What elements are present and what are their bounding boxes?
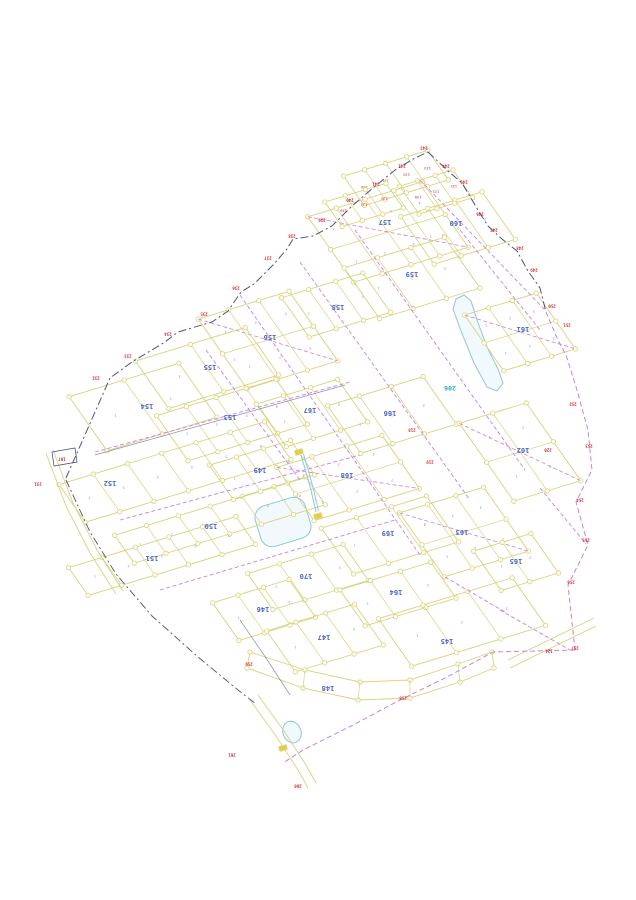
parcel-node — [368, 578, 372, 582]
parcel-node — [393, 614, 397, 618]
parcel-node — [462, 313, 466, 317]
parcel-node — [336, 377, 340, 381]
lot-number: 1 — [94, 574, 96, 578]
parcel-node — [334, 206, 338, 210]
cadastral-map-page: 1122331122334412312312311223312121234123… — [0, 0, 636, 900]
parcel-node — [397, 184, 401, 188]
parcel-node — [338, 588, 342, 592]
parcel-node — [363, 624, 367, 628]
block-label: 155 — [204, 363, 217, 371]
lot-number: 1 — [416, 634, 418, 638]
water-body — [280, 719, 304, 746]
parcel-node — [409, 245, 413, 249]
lot-number: 3 — [338, 403, 340, 407]
red-marker: 248 — [516, 246, 524, 251]
block-label: 170 — [300, 572, 313, 580]
lot-number: 4 — [191, 465, 193, 469]
parcel-node — [125, 461, 129, 465]
red-marker: 107 — [58, 457, 66, 462]
parcel-node — [293, 492, 297, 496]
lot-number: 3 — [506, 606, 508, 610]
parcel-node — [352, 602, 356, 606]
block-label: 152 — [104, 479, 117, 487]
lot-number: 5 — [225, 454, 227, 458]
red-lot-number: 130 — [339, 209, 347, 214]
block-label: 154 — [141, 402, 154, 410]
block-label: 160 — [450, 219, 463, 227]
lot-number: 1 — [354, 544, 356, 548]
parcel-node — [534, 291, 538, 295]
parcel-node — [322, 661, 326, 665]
lot-number: 2 — [522, 425, 524, 429]
parcel-node — [484, 460, 488, 464]
block-label: 148 — [322, 684, 335, 692]
block-label: 161 — [517, 325, 530, 333]
lot-number: 1 — [377, 286, 379, 290]
parcel-node — [380, 433, 384, 437]
parcel-node — [573, 347, 577, 351]
parcel-node — [246, 440, 250, 444]
parcel-node — [554, 319, 558, 323]
lot-number: 1 — [485, 323, 487, 327]
parcel-node — [309, 552, 313, 556]
street-dashed — [206, 350, 300, 480]
parcel-node — [357, 394, 361, 398]
parcel-node — [186, 563, 190, 567]
parcel-node — [391, 441, 395, 445]
parcel-node — [340, 224, 344, 228]
red-marker: 219 — [426, 460, 434, 465]
parcel-node — [291, 512, 295, 516]
parcel-node — [86, 593, 90, 597]
red-marker: 246 — [476, 212, 484, 217]
parcel-node — [166, 406, 170, 410]
parcel-node — [112, 533, 116, 537]
parcel-node — [221, 390, 225, 394]
parcel-node — [433, 173, 437, 177]
parcel-node — [551, 440, 555, 444]
parcel-node — [446, 178, 450, 182]
cadastral-map-svg: 1122331122334412312312311223312121234123… — [0, 0, 636, 900]
parcel-node — [310, 455, 314, 459]
parcel-node — [360, 218, 364, 222]
block-label: 167 — [304, 406, 317, 414]
parcel-node — [421, 603, 425, 607]
parcel-node — [499, 588, 503, 592]
red-marker: 252 — [569, 402, 577, 407]
lot-number: 1 — [505, 351, 507, 355]
parcel-node — [362, 167, 366, 171]
lot-line — [196, 443, 222, 481]
parcel-node — [152, 499, 156, 503]
parcel-node — [417, 212, 421, 216]
parcel-node — [409, 263, 413, 267]
parcel-node — [186, 489, 190, 493]
lot-number: 2 — [461, 620, 463, 624]
parcel-node — [421, 550, 425, 554]
lot-number: 1 — [489, 436, 491, 440]
parcel-node — [186, 459, 190, 463]
red-marker: 124 — [545, 649, 553, 654]
red-marker: 260 — [294, 784, 302, 789]
parcel-node — [258, 489, 262, 493]
parcel-node — [231, 497, 235, 501]
parcel-node — [284, 445, 288, 449]
parcel-node — [234, 514, 238, 518]
parcel-node — [194, 440, 198, 444]
road — [46, 453, 116, 594]
parcel-node — [363, 187, 367, 191]
parcel-node — [470, 196, 474, 200]
parcel-node — [293, 670, 297, 674]
parcel-node — [311, 324, 315, 328]
parcel-node — [453, 494, 457, 498]
parcel-node — [261, 585, 265, 589]
red-marker: 238 — [288, 234, 296, 239]
parcel-node — [334, 279, 338, 283]
parcel-node — [274, 377, 278, 381]
parcel-node — [305, 422, 309, 426]
parcel-node — [342, 266, 346, 270]
parcel-node — [334, 327, 338, 331]
parcel-node — [253, 542, 257, 546]
lot-number: 1 — [114, 413, 116, 417]
block-label: 169 — [382, 529, 395, 537]
parcel-node — [153, 573, 157, 577]
lot-number: 2 — [384, 251, 386, 255]
lot-number: 1 — [359, 423, 361, 427]
lot-line — [303, 670, 305, 688]
lot-line — [311, 554, 336, 590]
block-label: 166 — [384, 409, 397, 417]
parcel-node — [443, 212, 447, 216]
lot-number: 3 — [339, 565, 341, 569]
parcel-node — [383, 161, 387, 165]
parcel-node — [220, 352, 224, 356]
parcel-node — [452, 201, 456, 205]
parcel-node — [504, 517, 508, 521]
lot-number: 1 — [430, 234, 432, 238]
lot-number: 6 — [299, 494, 301, 498]
parcel-node — [480, 190, 484, 194]
red-marker: 237 — [264, 256, 272, 261]
lot-line — [284, 396, 314, 439]
lot-number: 1 — [178, 374, 180, 378]
lot-number: 3 — [285, 311, 287, 315]
boundary-magenta — [546, 312, 592, 650]
parcel-node — [442, 235, 446, 239]
parcel-node — [262, 420, 266, 424]
parcel-node — [525, 361, 529, 365]
red-marker: 235 — [200, 312, 208, 317]
parcel-node — [177, 361, 181, 365]
parcel-node — [501, 369, 505, 373]
block-label: 159 — [406, 270, 419, 278]
lot-number: 1 — [234, 476, 236, 480]
red-marker: 256 — [567, 580, 575, 585]
red-marker: 242 — [398, 164, 406, 169]
parcel-node — [184, 404, 188, 408]
parcel-node — [398, 569, 402, 573]
parcel-node — [513, 237, 517, 241]
lot-number: 3 — [391, 479, 393, 483]
parcel-node — [341, 174, 345, 178]
red-marker: 250 — [548, 304, 556, 309]
red-lot-number: 132 — [450, 184, 457, 189]
lot-number: 1 — [88, 496, 90, 500]
water-body — [453, 295, 503, 391]
block-label: 157 — [379, 218, 392, 226]
red-marker: 240 — [346, 198, 354, 203]
block-label: 146 — [257, 605, 270, 613]
parcel-node — [510, 576, 514, 580]
red-marker: 251 — [563, 323, 571, 328]
red-marker: 218 — [408, 428, 416, 433]
parcel-node — [444, 296, 448, 300]
parcel-node — [122, 378, 126, 382]
parcel-node — [426, 206, 430, 210]
lot-number: 2 — [338, 463, 340, 467]
parcel-node — [338, 428, 342, 432]
lot-number: 3 — [413, 242, 415, 246]
red-marker: 261 — [228, 753, 236, 758]
red-lot-number: 132 — [403, 172, 410, 177]
lot-number: 5 — [267, 503, 269, 507]
lot-number: 3 — [161, 554, 163, 558]
red-marker: 220 — [544, 448, 552, 453]
parcel-node — [388, 310, 392, 314]
parcel-node — [176, 514, 180, 518]
lot-number: 4 — [418, 200, 420, 204]
street-dashed — [120, 455, 360, 520]
parcel-node — [237, 638, 241, 642]
road — [250, 700, 308, 788]
parcel-node — [354, 515, 358, 519]
parcel-node — [308, 385, 312, 389]
parcel-node — [287, 577, 291, 581]
red-marker: 236 — [232, 286, 240, 291]
red-marker: 259 — [245, 662, 253, 667]
parcel-node — [381, 212, 385, 216]
lot-line — [468, 591, 501, 639]
parcel-node — [432, 262, 436, 266]
parcel-node — [210, 601, 214, 605]
parcel-node — [133, 545, 137, 549]
lot-number: 2 — [216, 423, 218, 427]
red-marker: 255 — [582, 538, 590, 543]
parcel-node — [545, 489, 549, 493]
parcel-node — [287, 289, 291, 293]
parcel-node — [401, 206, 405, 210]
lot-line — [296, 622, 325, 663]
parcel-node — [216, 449, 220, 453]
lot-number: 1 — [295, 645, 297, 649]
parcel-node — [389, 505, 393, 509]
red-lot-number: 131 — [432, 190, 440, 195]
lot-number: 1 — [424, 523, 426, 527]
parcel-node — [352, 652, 356, 656]
parcel-node — [328, 247, 332, 251]
block-label: 145 — [441, 637, 454, 645]
parcel-node — [424, 494, 428, 498]
parcel-node — [244, 386, 248, 390]
lot-number: 2 — [452, 514, 454, 518]
lot-number: 1 — [501, 564, 503, 568]
water-label: 206 — [444, 384, 456, 392]
parcel-node — [132, 561, 136, 565]
lot-line — [370, 581, 395, 617]
lot-line — [147, 526, 167, 554]
lot-number: 3 — [157, 475, 159, 479]
parcel-node — [381, 643, 385, 647]
parcel-node — [510, 298, 514, 302]
parcel-node — [425, 502, 429, 506]
parcel-node — [160, 451, 164, 455]
red-marker: 231 — [34, 482, 42, 487]
parcel-node — [526, 549, 530, 553]
red-marker: 239 — [318, 218, 326, 223]
parcel-node — [261, 446, 265, 450]
block-label: 147 — [318, 633, 331, 641]
parcel-node — [492, 666, 496, 670]
parcel-node — [498, 557, 502, 561]
lot-number: 3 — [246, 413, 248, 417]
parcel-node — [556, 571, 560, 575]
lot-line — [458, 664, 460, 682]
street-dashed — [500, 610, 570, 650]
parcel-node — [228, 430, 232, 434]
lot-line — [230, 432, 256, 470]
lot-number: 1 — [249, 365, 251, 369]
parcel-node — [389, 384, 393, 388]
lot-number: 3 — [423, 403, 425, 407]
parcel-node — [164, 551, 168, 555]
lot-line — [336, 281, 364, 320]
road — [53, 450, 123, 591]
parcel-node — [167, 535, 171, 539]
parcel-node — [529, 531, 533, 535]
block-label: 165 — [510, 557, 523, 565]
parcel-node — [486, 306, 490, 310]
parcel-node — [319, 526, 323, 530]
parcel-node — [482, 341, 486, 345]
parcel-node — [524, 401, 528, 405]
parcel-node — [245, 571, 249, 575]
block-label: 151 — [146, 554, 159, 562]
lot-number: 3 — [288, 600, 290, 604]
lot-number: 2 — [255, 321, 257, 325]
parcel-node — [305, 368, 309, 372]
parcel-node — [398, 460, 402, 464]
red-marker: 243 — [420, 146, 428, 151]
lot-number: 2 — [127, 564, 129, 568]
block-label: 163 — [456, 528, 469, 536]
lot-line — [359, 396, 392, 444]
lot-number: 1 — [355, 260, 357, 264]
red-marker: 253 — [585, 444, 593, 449]
lot-line — [391, 507, 423, 553]
parcel-node — [254, 402, 258, 406]
parcel-node — [323, 611, 327, 615]
parcel-node — [478, 286, 482, 290]
lot-line — [279, 564, 304, 600]
parcel-node — [491, 411, 495, 415]
lot-number: 3 — [373, 452, 375, 456]
parcel-node — [457, 421, 461, 425]
parcel-node — [220, 552, 224, 556]
lot-line — [102, 557, 122, 585]
lot-number: 3 — [480, 505, 482, 509]
parcel-node — [512, 499, 516, 503]
red-marker: 234 — [164, 332, 172, 337]
lot-number: 2 — [529, 556, 531, 560]
parcel-node — [66, 565, 70, 569]
parcel-node — [376, 616, 380, 620]
red-lot-number: 131 — [360, 203, 368, 208]
parcel-node — [456, 540, 460, 544]
parcel-node — [236, 593, 240, 597]
parcel-node — [234, 455, 238, 459]
parcel-node — [288, 438, 292, 442]
parcel-node — [415, 179, 419, 183]
red-marker: 232 — [92, 376, 100, 381]
yellow-marker — [294, 448, 303, 455]
parcel-node — [361, 318, 365, 322]
parcel-node — [307, 335, 311, 339]
parcel-node — [470, 566, 474, 570]
parcel-node — [208, 504, 212, 508]
parcel-node — [361, 271, 365, 275]
parcel-node — [144, 523, 148, 527]
block-label: 150 — [205, 522, 218, 530]
lot-number: 2 — [169, 397, 171, 401]
parcel-node — [117, 510, 121, 514]
parcel-node — [277, 562, 281, 566]
lot-line — [169, 537, 189, 565]
lot-number: 1 — [237, 616, 239, 620]
parcel-node — [351, 572, 355, 576]
red-marker: 257 — [571, 646, 579, 651]
parcel-node — [384, 181, 388, 185]
parcel-node — [279, 296, 283, 300]
parcel-node — [386, 561, 390, 565]
red-lot-number: 130 — [414, 195, 422, 200]
parcel-node — [486, 245, 490, 249]
lot-line — [186, 407, 218, 452]
parcel-node — [528, 579, 532, 583]
red-marker: 258 — [399, 696, 407, 701]
lot-line — [128, 464, 154, 502]
parcel-node — [294, 620, 298, 624]
parcel-node — [471, 549, 475, 553]
lot-line — [178, 516, 198, 544]
parcel-node — [67, 395, 71, 399]
lot-number: 2 — [509, 316, 511, 320]
lot-number: 1 — [446, 555, 448, 559]
parcel-node — [499, 637, 503, 641]
block-label: 168 — [341, 471, 354, 479]
lot-number: 1 — [275, 585, 277, 589]
parcel-node — [323, 200, 327, 204]
parcel-node — [91, 472, 95, 476]
lot-number: 1 — [308, 311, 310, 315]
parcel-node — [243, 325, 247, 329]
lot-number: 2 — [123, 486, 125, 490]
boundary-navy — [66, 480, 256, 704]
parcel-node — [347, 508, 351, 512]
lot-number: 3 — [444, 266, 446, 270]
block-label: 158 — [332, 303, 345, 311]
